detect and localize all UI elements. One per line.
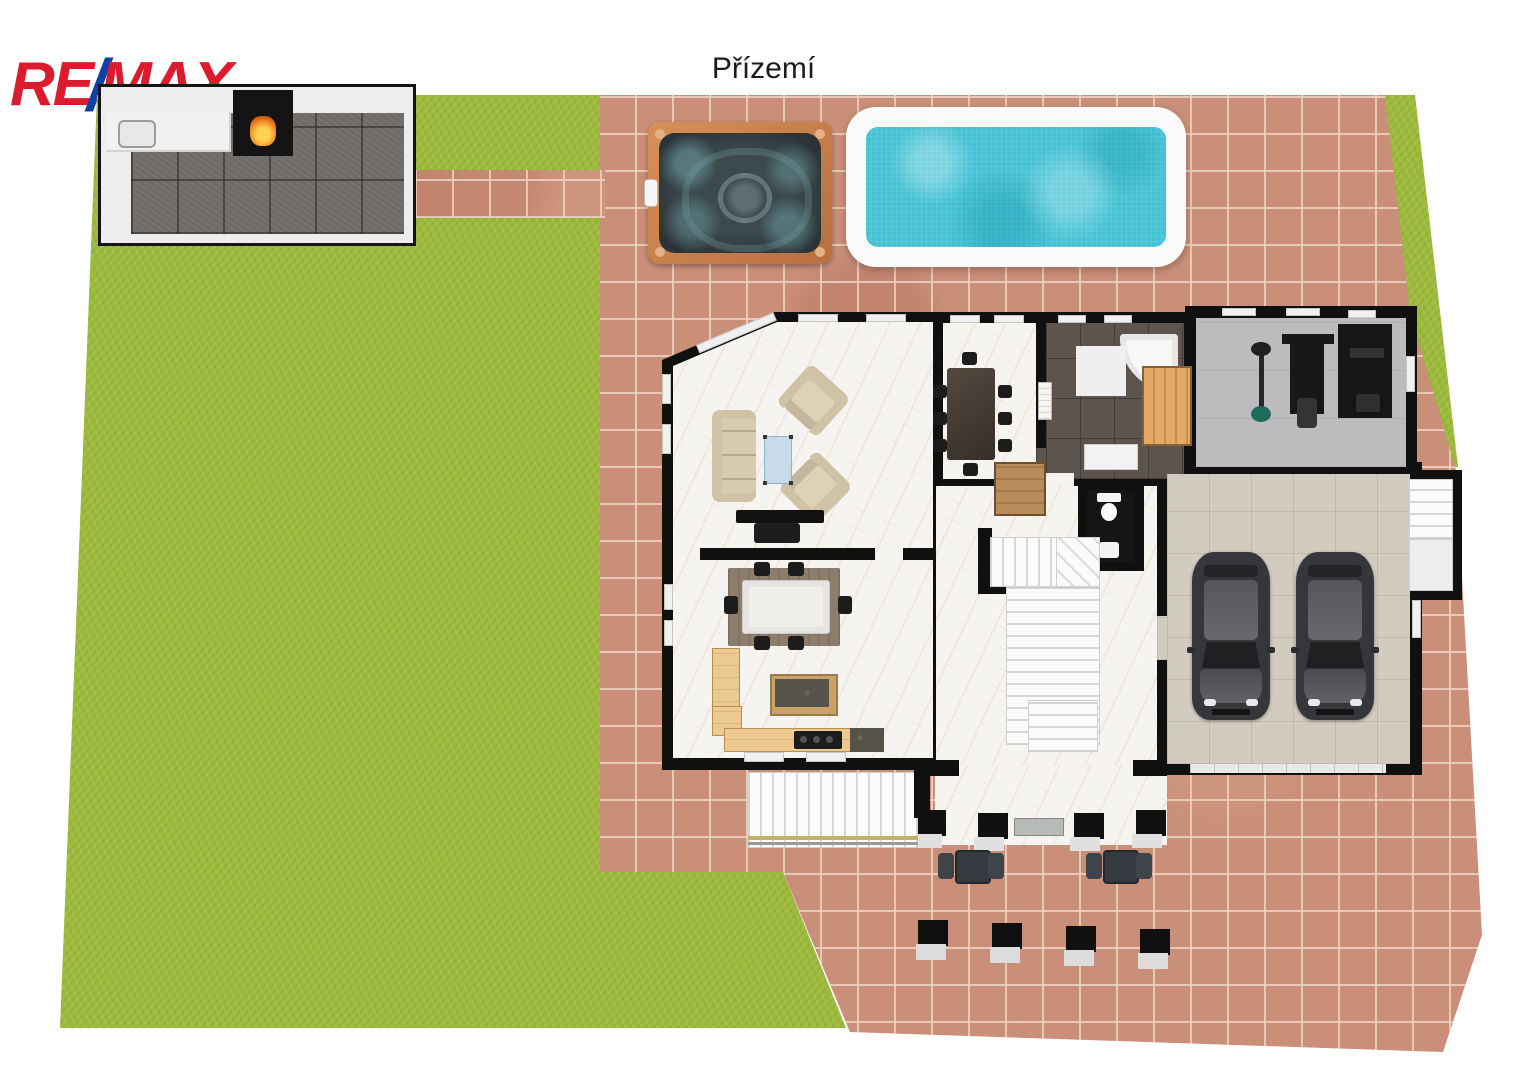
car-windshield <box>1202 642 1260 668</box>
dining-chair <box>788 562 804 576</box>
kitchen-island <box>770 674 838 716</box>
bistro-table <box>1103 850 1139 884</box>
tv-stand <box>754 523 800 543</box>
window <box>1286 308 1320 316</box>
pillar-base <box>1138 953 1168 969</box>
porch-column <box>978 813 1008 839</box>
dining-chair <box>962 352 977 365</box>
burner <box>826 736 833 743</box>
dining-chair <box>724 596 738 614</box>
car-grille <box>1212 709 1250 715</box>
window <box>744 752 784 762</box>
car <box>1296 552 1374 720</box>
barbell-plate <box>1251 406 1271 422</box>
bath-hall-opening <box>1046 473 1074 486</box>
car-rear-glass <box>1308 565 1362 577</box>
dining-chair <box>754 562 770 576</box>
exterior-east-staircase <box>1409 479 1453 539</box>
pool-water <box>866 127 1166 247</box>
car-mirror <box>1267 647 1275 653</box>
car-mirror <box>1187 647 1195 653</box>
window <box>1222 308 1256 316</box>
east-stair-landing <box>1409 539 1453 591</box>
shower-mat <box>1076 346 1126 396</box>
stair-end-post <box>914 768 930 818</box>
car-hood <box>1200 669 1262 703</box>
hot-tub <box>648 122 832 264</box>
window <box>664 620 673 646</box>
hot-tub-bolt <box>815 247 825 257</box>
table-leg <box>789 481 793 485</box>
pillar <box>990 923 1024 967</box>
porch-steps <box>1028 700 1098 752</box>
kitchen-table <box>742 580 830 634</box>
bistro-chair <box>1086 853 1102 879</box>
gym-seat <box>1356 394 1380 412</box>
dining-chair <box>998 439 1012 452</box>
window <box>806 752 846 762</box>
barbell <box>1259 350 1264 412</box>
dining-chair <box>933 412 947 425</box>
window <box>994 315 1024 323</box>
bistro-table <box>955 850 991 884</box>
outdoor-kitchen-pergola <box>98 84 416 246</box>
car-roof <box>1204 580 1258 640</box>
stair-railing-rail <box>748 842 918 845</box>
burner <box>800 736 807 743</box>
dining-chair <box>933 439 947 452</box>
window <box>1406 356 1415 392</box>
table-leg <box>789 435 793 439</box>
dining-chair <box>933 385 947 398</box>
pillar <box>1064 926 1098 970</box>
porch-wall-stub-west <box>925 760 959 776</box>
pillar-cap <box>1140 929 1170 955</box>
window <box>1104 315 1132 323</box>
floor-title: Přízemí <box>0 52 1527 86</box>
pillar <box>916 920 950 964</box>
sofa <box>712 410 756 502</box>
window <box>950 315 980 323</box>
living-dining-divider-stub <box>903 548 933 560</box>
counter-granite <box>850 728 884 752</box>
gym-machine-arm <box>1350 348 1384 358</box>
car-windshield <box>1306 642 1364 668</box>
bistro-chair <box>938 853 954 879</box>
bistro-set <box>938 848 1004 884</box>
hot-tub-center-jet <box>718 173 772 223</box>
car-mirror <box>1291 647 1299 653</box>
car-hood <box>1304 669 1366 703</box>
hot-tub-bolt <box>655 247 665 257</box>
gym-bench <box>1297 398 1317 428</box>
porch-column <box>1074 813 1104 839</box>
stair-railing <box>748 836 918 840</box>
car-headlight <box>1308 699 1320 706</box>
dining-chair <box>838 596 852 614</box>
grill-fireplace <box>233 90 293 156</box>
tv-screen <box>736 510 824 523</box>
garage-door-opening <box>1157 616 1167 660</box>
sauna-cabin <box>1142 366 1192 446</box>
table-leg <box>763 481 767 485</box>
pillar-base <box>990 947 1020 963</box>
outdoor-sink <box>118 120 156 148</box>
barbell-plate <box>1251 342 1271 356</box>
porch-wall-stub-east <box>1133 760 1167 776</box>
car-rear-glass <box>1204 565 1258 577</box>
swimming-pool <box>846 107 1186 267</box>
table-leg <box>763 435 767 439</box>
window <box>662 424 671 454</box>
car <box>1192 552 1270 720</box>
doormat <box>1014 818 1064 836</box>
grill-fire <box>250 116 276 146</box>
bistro-set <box>1086 848 1152 884</box>
toilet-bowl <box>1101 503 1117 521</box>
window <box>1412 600 1421 638</box>
hall-sideboard <box>994 462 1046 516</box>
car-mirror <box>1371 647 1379 653</box>
pillar <box>1138 929 1172 973</box>
car-headlight <box>1204 699 1216 706</box>
car-headlight <box>1246 699 1258 706</box>
bistro-chair <box>1136 853 1152 879</box>
hot-tub-control-panel <box>645 180 657 206</box>
bistro-chair <box>988 853 1004 879</box>
cooktop <box>794 731 842 749</box>
radiator <box>1038 382 1052 420</box>
garden-path <box>415 170 605 218</box>
window <box>662 374 671 404</box>
dining-chair <box>963 463 978 476</box>
hot-tub-bolt <box>815 129 825 139</box>
formal-dining-table <box>947 368 995 460</box>
gym-machine <box>1282 334 1334 344</box>
toilet-tank <box>1097 493 1121 502</box>
pillar-cap <box>992 923 1022 949</box>
window <box>664 584 673 610</box>
floorplan-page: RE/MAX Přízemí <box>0 0 1527 1080</box>
car-roof <box>1308 580 1362 640</box>
porch-column-base <box>1132 834 1162 848</box>
garage-door <box>1190 764 1386 773</box>
pillar-cap <box>1066 926 1096 952</box>
burner <box>813 736 820 743</box>
window <box>1058 315 1086 323</box>
window <box>866 314 906 322</box>
living-dining-divider <box>700 548 875 560</box>
dining-chair <box>788 636 804 650</box>
exterior-west-staircase <box>748 772 918 848</box>
dining-chair <box>998 412 1012 425</box>
dining-chair <box>998 385 1012 398</box>
pillar-cap <box>918 920 948 946</box>
bath-cabinet-white <box>1084 444 1138 470</box>
wc-sink <box>1099 542 1119 558</box>
car-grille <box>1316 709 1354 715</box>
window <box>798 314 838 322</box>
staircase-winder <box>1056 537 1100 587</box>
dining-chair <box>754 636 770 650</box>
window <box>1348 310 1376 318</box>
porch-column <box>1136 810 1166 836</box>
hot-tub-bolt <box>655 129 665 139</box>
pillar-base <box>916 944 946 960</box>
coffee-table <box>764 436 792 484</box>
island-granite-top <box>775 679 829 707</box>
pillar-base <box>1064 950 1094 966</box>
kitchen-counter-west <box>712 648 740 714</box>
car-headlight <box>1350 699 1362 706</box>
